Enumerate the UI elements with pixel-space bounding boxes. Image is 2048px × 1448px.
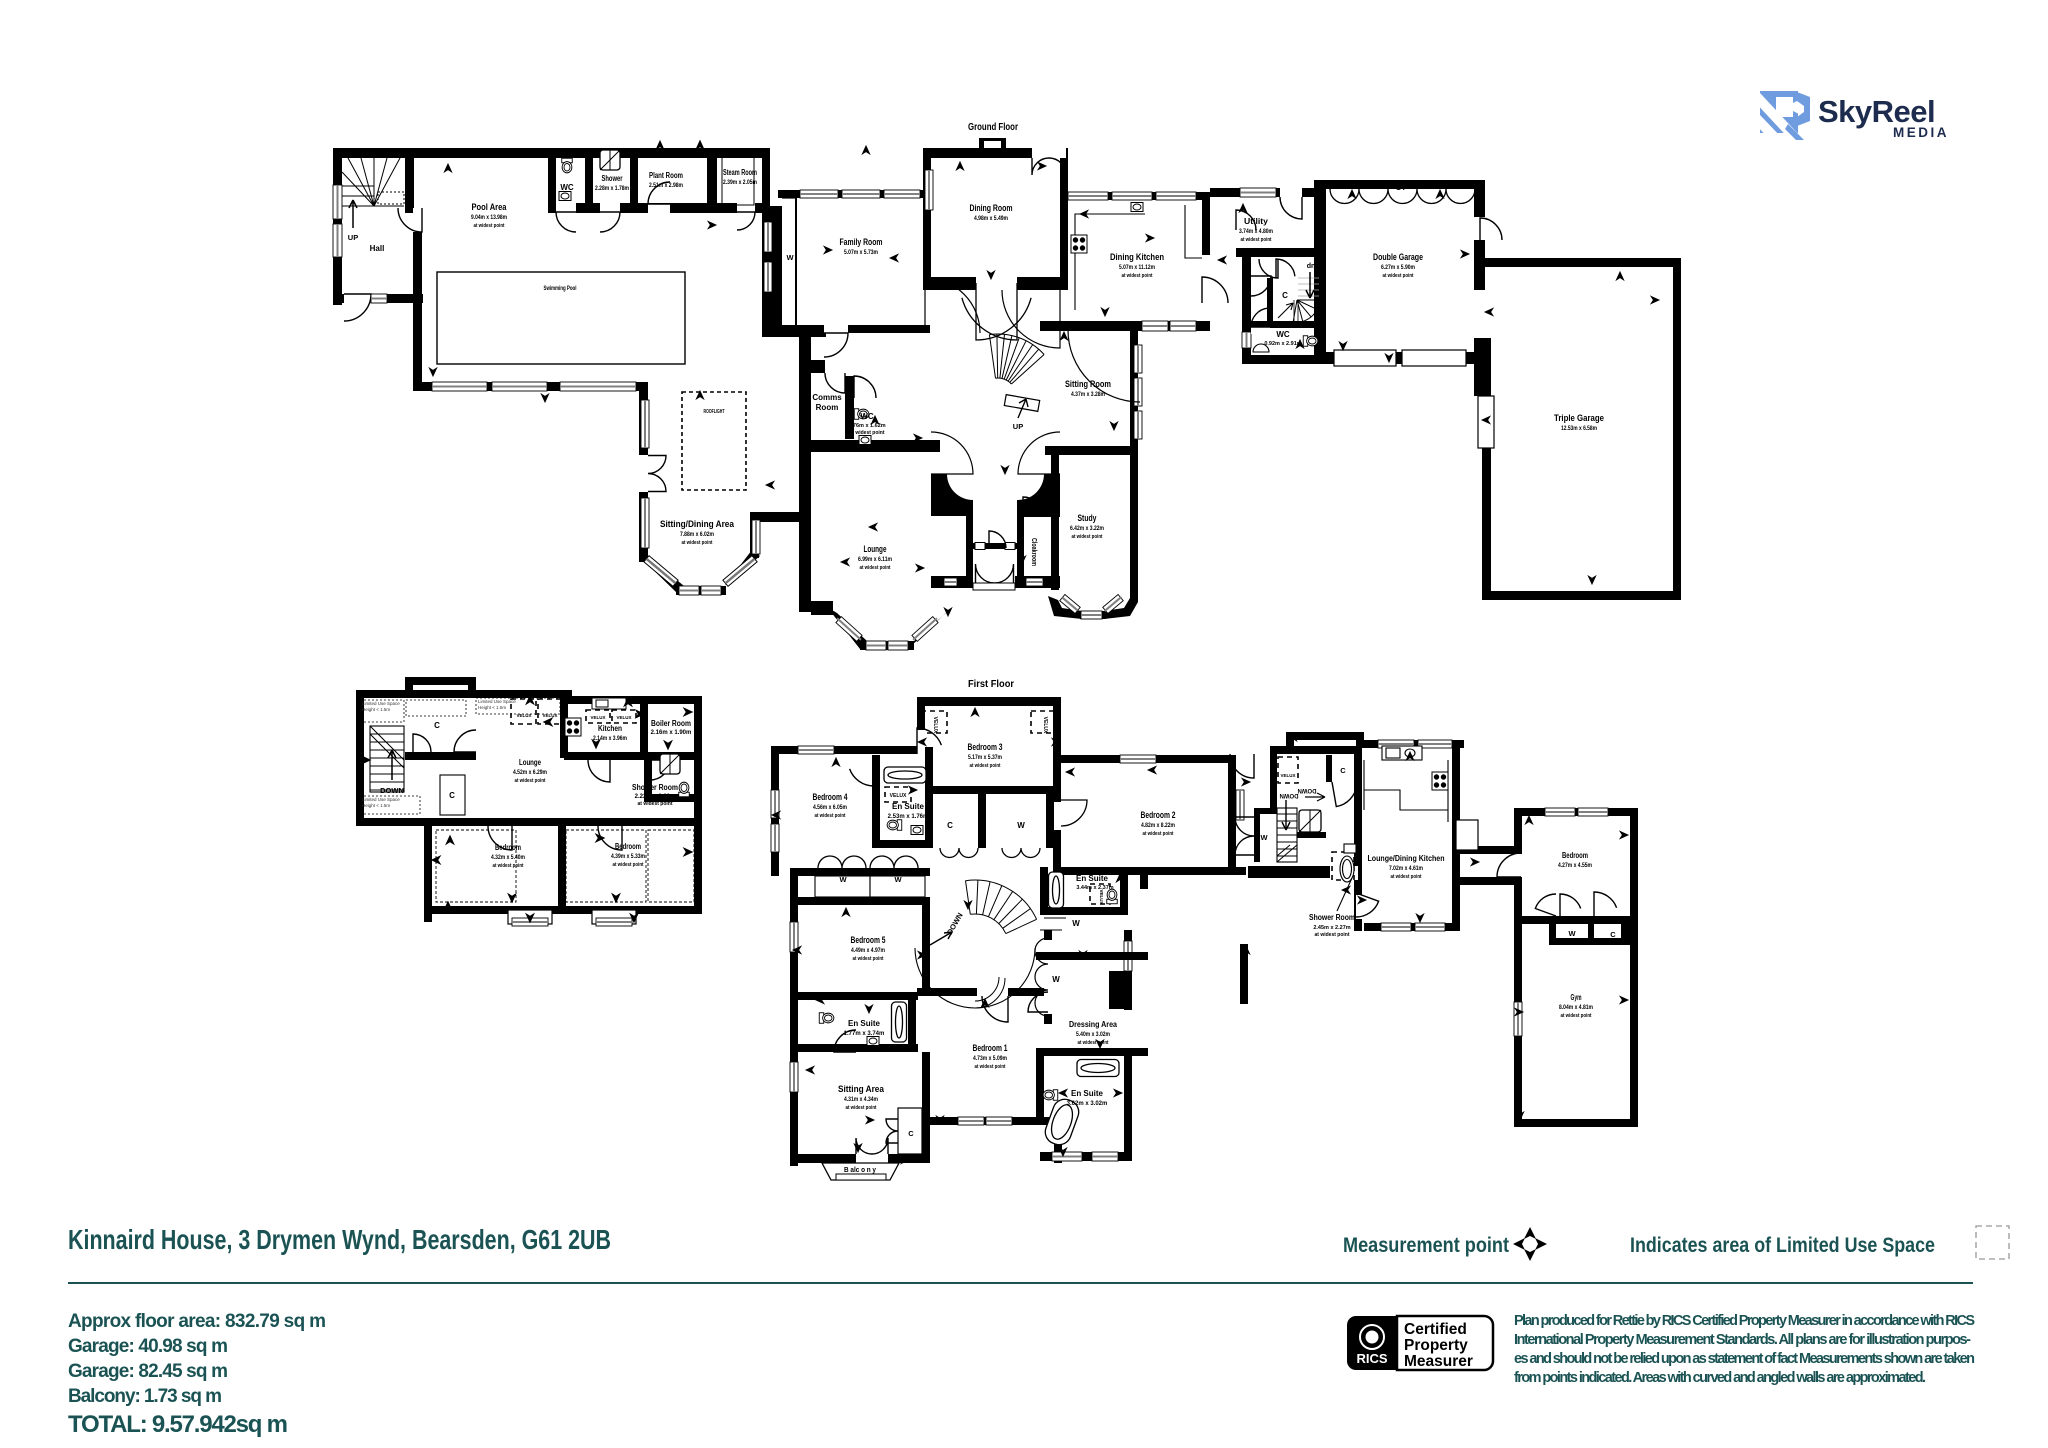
svg-text:6.27m x 5.90m: 6.27m x 5.90m	[1381, 264, 1415, 271]
svg-text:at widest point: at widest point	[613, 862, 644, 868]
svg-text:Bedroom 5: Bedroom 5	[851, 935, 886, 945]
svg-text:at widest point: at widest point	[1122, 273, 1153, 279]
svg-text:1.77m x 3.74m: 1.77m x 3.74m	[844, 1031, 885, 1037]
svg-text:RICS: RICS	[1356, 1351, 1387, 1366]
svg-text:5.40m x 3.02m: 5.40m x 3.02m	[1076, 1031, 1110, 1038]
svg-text:Approx floor area: 832.79 sq m: Approx floor area: 832.79 sq m	[68, 1311, 326, 1332]
svg-text:Measurer: Measurer	[1404, 1353, 1473, 1370]
svg-text:at widest point: at widest point	[682, 540, 713, 546]
svg-text:TOTAL: 9.57.942sq m: TOTAL: 9.57.942sq m	[68, 1411, 288, 1438]
svg-text:UP: UP	[348, 233, 358, 242]
svg-text:Shower: Shower	[602, 174, 623, 183]
svg-text:Limited Use Space: Limited Use Space	[362, 797, 400, 802]
svg-text:VELUX: VELUX	[1280, 773, 1295, 778]
svg-text:W: W	[786, 253, 794, 262]
svg-text:VELUX: VELUX	[616, 715, 631, 720]
svg-text:6.42m x 3.22m: 6.42m x 3.22m	[1070, 525, 1104, 532]
svg-text:4.98m x 5.49m: 4.98m x 5.49m	[974, 215, 1008, 222]
svg-text:MEDIA: MEDIA	[1893, 125, 1949, 140]
svg-text:4.32m x 5.40m: 4.32m x 5.40m	[491, 854, 525, 861]
svg-text:at widest point: at widest point	[1315, 932, 1350, 938]
svg-text:5.07m x 5.73m: 5.07m x 5.73m	[844, 249, 878, 256]
svg-text:2.28m x 1.78m: 2.28m x 1.78m	[595, 185, 629, 192]
svg-text:VELUX: VELUX	[1042, 717, 1048, 734]
svg-text:9.04m x 13.98m: 9.04m x 13.98m	[471, 214, 507, 221]
svg-text:at widest point: at widest point	[493, 863, 524, 869]
svg-text:WC: WC	[1276, 330, 1290, 339]
svg-text:4.73m x 5.09m: 4.73m x 5.09m	[973, 1055, 1007, 1062]
svg-text:4.52m x 6.29m: 4.52m x 6.29m	[513, 769, 547, 776]
svg-text:12.53m x 6.58m: 12.53m x 6.58m	[1561, 425, 1597, 432]
svg-text:Height < 1.5m: Height < 1.5m	[478, 705, 506, 710]
svg-text:Indicates area of Limited Use: Indicates area of Limited Use Space	[1630, 1234, 1935, 1257]
svg-text:Garage: 82.45 sq m: Garage: 82.45 sq m	[68, 1361, 228, 1382]
svg-text:at widest point: at widest point	[1078, 1040, 1109, 1046]
svg-text:C: C	[947, 821, 953, 830]
svg-text:4.27m x 4.55m: 4.27m x 4.55m	[1558, 862, 1592, 869]
svg-text:at widest point: at widest point	[474, 223, 505, 229]
svg-text:Kinnaird House, 3 Drymen Wynd,: Kinnaird House, 3 Drymen Wynd, Bearsden,…	[68, 1224, 611, 1255]
svg-text:at widest point: at widest point	[638, 801, 673, 807]
svg-text:4.31m x 4.34m: 4.31m x 4.34m	[844, 1096, 878, 1103]
svg-text:Lounge: Lounge	[864, 544, 887, 554]
svg-text:Garage: 40.98 sq m: Garage: 40.98 sq m	[68, 1336, 228, 1357]
svg-text:at widest point: at widest point	[1072, 534, 1103, 540]
svg-text:Balcony: 1.73 sq m: Balcony: 1.73 sq m	[68, 1386, 222, 1407]
svg-text:Dining Kitchen: Dining Kitchen	[1110, 252, 1164, 262]
svg-text:Plan produced for Rettie by RI: Plan produced for Rettie by RICS Certifi…	[1514, 1313, 1975, 1329]
svg-text:2.76m x 1.62m: 2.76m x 1.62m	[848, 423, 885, 429]
svg-text:3.74m x 4.80m: 3.74m x 4.80m	[1239, 228, 1273, 235]
svg-text:W: W	[1072, 919, 1080, 928]
svg-text:Property: Property	[1404, 1337, 1468, 1354]
svg-text:Gym: Gym	[1571, 992, 1582, 1002]
svg-text:Plant Room: Plant Room	[649, 171, 683, 180]
svg-text:Comms: Comms	[812, 393, 842, 402]
svg-text:En Suite: En Suite	[1071, 1089, 1104, 1098]
svg-text:4.49m x 4.97m: 4.49m x 4.97m	[851, 947, 885, 954]
svg-text:Hall: Hall	[370, 244, 385, 253]
svg-text:at widest point: at widest point	[853, 956, 884, 962]
svg-text:W: W	[1052, 975, 1060, 984]
svg-text:at widest point: at widest point	[815, 813, 846, 819]
svg-text:at widest point: at widest point	[1383, 273, 1414, 279]
svg-text:WC: WC	[560, 183, 574, 192]
svg-text:8.04m x 4.81m: 8.04m x 4.81m	[1559, 1004, 1593, 1011]
svg-text:Certified: Certified	[1404, 1321, 1467, 1338]
svg-text:Ground Floor: Ground Floor	[968, 122, 1018, 133]
svg-text:B alc o n y: B alc o n y	[844, 1167, 876, 1174]
svg-text:2.51m x 2.98m: 2.51m x 2.98m	[649, 182, 683, 189]
svg-text:at widest point: at widest point	[970, 763, 1001, 769]
svg-text:Height < 1.5m: Height < 1.5m	[362, 707, 390, 712]
svg-text:2.16m x 1.90m: 2.16m x 1.90m	[651, 730, 692, 736]
svg-text:Room: Room	[816, 403, 839, 412]
svg-text:C: C	[1340, 766, 1346, 775]
svg-text:Measurement point: Measurement point	[1343, 1234, 1509, 1257]
svg-text:En Suite: En Suite	[1076, 874, 1109, 883]
svg-text:DOWN: DOWN	[1280, 792, 1299, 798]
svg-text:2.53m x 1.76m: 2.53m x 1.76m	[888, 814, 929, 820]
svg-text:at widest point: at widest point	[975, 1064, 1006, 1070]
svg-text:dn: dn	[1307, 263, 1316, 270]
svg-text:at widest point: at widest point	[860, 565, 891, 571]
svg-text:C: C	[1282, 291, 1288, 300]
svg-text:En Suite: En Suite	[892, 802, 925, 811]
svg-text:Bedroom: Bedroom	[1562, 850, 1588, 860]
svg-text:Dining Room: Dining Room	[970, 203, 1013, 213]
svg-text:W: W	[1017, 821, 1025, 830]
svg-text:Sitting Area: Sitting Area	[838, 1084, 885, 1094]
svg-text:5.17m x 5.37m: 5.17m x 5.37m	[968, 754, 1002, 761]
svg-text:7.02m x 4.61m: 7.02m x 4.61m	[1389, 865, 1423, 872]
svg-text:Double Garage: Double Garage	[1373, 252, 1423, 262]
svg-text:Swimming Pool: Swimming Pool	[544, 286, 577, 292]
svg-text:Dressing Area: Dressing Area	[1069, 1019, 1117, 1029]
svg-text:W: W	[1568, 929, 1576, 938]
svg-text:ST: ST	[1396, 183, 1406, 192]
svg-text:Steam Room: Steam Room	[723, 168, 757, 177]
svg-text:2.45m x 2.27m: 2.45m x 2.27m	[1313, 925, 1350, 931]
svg-text:International Property Measur: International Property Measurement Stand…	[1514, 1332, 1971, 1348]
svg-text:5.07m x 11.12m: 5.07m x 11.12m	[1119, 264, 1155, 271]
svg-text:4.82m x 8.22m: 4.82m x 8.22m	[1141, 822, 1175, 829]
svg-text:Utility: Utility	[1244, 217, 1269, 226]
svg-text:from points indicated. Areas w: from points indicated. Areas with curved…	[1514, 1370, 1926, 1386]
svg-text:Bedroom 1: Bedroom 1	[973, 1043, 1008, 1053]
svg-text:Height < 1.5m: Height < 1.5m	[362, 803, 390, 808]
svg-text:UP: UP	[1013, 422, 1023, 431]
svg-text:at widest point: at widest point	[1391, 874, 1422, 880]
svg-text:C: C	[908, 1129, 914, 1138]
svg-text:C: C	[449, 791, 455, 800]
svg-text:VELUX: VELUX	[590, 715, 605, 720]
svg-text:Lounge/Dining Kitchen: Lounge/Dining Kitchen	[1368, 853, 1445, 863]
svg-text:4.37m x 3.28m: 4.37m x 3.28m	[1071, 391, 1105, 398]
svg-text:Bedroom 3: Bedroom 3	[968, 742, 1003, 752]
svg-text:3.62m x 3.02m: 3.62m x 3.02m	[1067, 1101, 1108, 1107]
svg-text:C: C	[1610, 930, 1616, 939]
svg-text:En Suite: En Suite	[848, 1019, 881, 1028]
svg-text:at widest point: at widest point	[1561, 1013, 1592, 1019]
svg-text:Lounge: Lounge	[519, 757, 541, 767]
svg-text:Boiler Room: Boiler Room	[651, 719, 691, 728]
svg-text:WC: WC	[860, 412, 874, 421]
svg-text:VELUX: VELUX	[542, 713, 557, 718]
svg-text:Shower Room: Shower Room	[1309, 913, 1355, 922]
svg-text:2.39m x 2.05m: 2.39m x 2.05m	[723, 179, 757, 186]
svg-text:VELUX: VELUX	[516, 713, 531, 718]
svg-text:Triple Garage: Triple Garage	[1554, 413, 1604, 423]
svg-text:Shower Room: Shower Room	[632, 783, 678, 792]
svg-text:4.56m x 6.05m: 4.56m x 6.05m	[813, 804, 847, 811]
svg-text:SkyReel: SkyReel	[1818, 94, 1935, 129]
svg-text:at widest point: at widest point	[1143, 831, 1174, 837]
svg-text:VELUX: VELUX	[1099, 889, 1104, 904]
svg-text:Bedroom 2: Bedroom 2	[1141, 810, 1176, 820]
svg-text:at widest point: at widest point	[515, 778, 546, 784]
svg-text:Bedroom: Bedroom	[495, 842, 521, 852]
svg-text:3.44m x 2.37m: 3.44m x 2.37m	[1076, 885, 1113, 891]
svg-text:Family Room: Family Room	[840, 237, 883, 247]
svg-text:7.88m x 6.02m: 7.88m x 6.02m	[680, 531, 714, 538]
svg-text:at widest point: at widest point	[850, 430, 885, 436]
svg-text:Bedroom: Bedroom	[615, 841, 641, 851]
svg-text:ROOFLIGHT: ROOFLIGHT	[704, 409, 725, 415]
svg-text:4.39m x 5.33m: 4.39m x 5.33m	[611, 853, 645, 860]
svg-text:Bedroom 4: Bedroom 4	[813, 792, 848, 802]
svg-text:DOWN: DOWN	[1298, 787, 1317, 793]
svg-text:Kitchen: Kitchen	[598, 724, 622, 733]
svg-text:C: C	[434, 721, 440, 730]
svg-text:Study: Study	[1078, 513, 1097, 523]
svg-text:es and should not be relied up: es and should not be relied upon as stat…	[1514, 1351, 1975, 1367]
svg-text:at widest point: at widest point	[1241, 237, 1272, 243]
svg-text:VELUX: VELUX	[932, 717, 938, 734]
svg-text:at widest point: at widest point	[846, 1105, 877, 1111]
svg-text:Limited Use Space: Limited Use Space	[362, 701, 400, 706]
svg-text:Sitting/Dining Area: Sitting/Dining Area	[660, 519, 735, 529]
svg-text:6.99m x 6.11m: 6.99m x 6.11m	[858, 556, 892, 563]
svg-text:W: W	[1260, 833, 1268, 842]
svg-text:Pool Area: Pool Area	[472, 202, 508, 212]
svg-text:DOWN: DOWN	[380, 786, 404, 795]
svg-text:Cloakroom: Cloakroom	[1030, 538, 1039, 566]
svg-text:First Floor: First Floor	[968, 679, 1014, 690]
svg-text:0.92m x 2.91m: 0.92m x 2.91m	[1264, 341, 1301, 347]
svg-text:VELUX: VELUX	[890, 793, 907, 799]
svg-text:2.22m x 2.62m: 2.22m x 2.62m	[635, 794, 676, 800]
